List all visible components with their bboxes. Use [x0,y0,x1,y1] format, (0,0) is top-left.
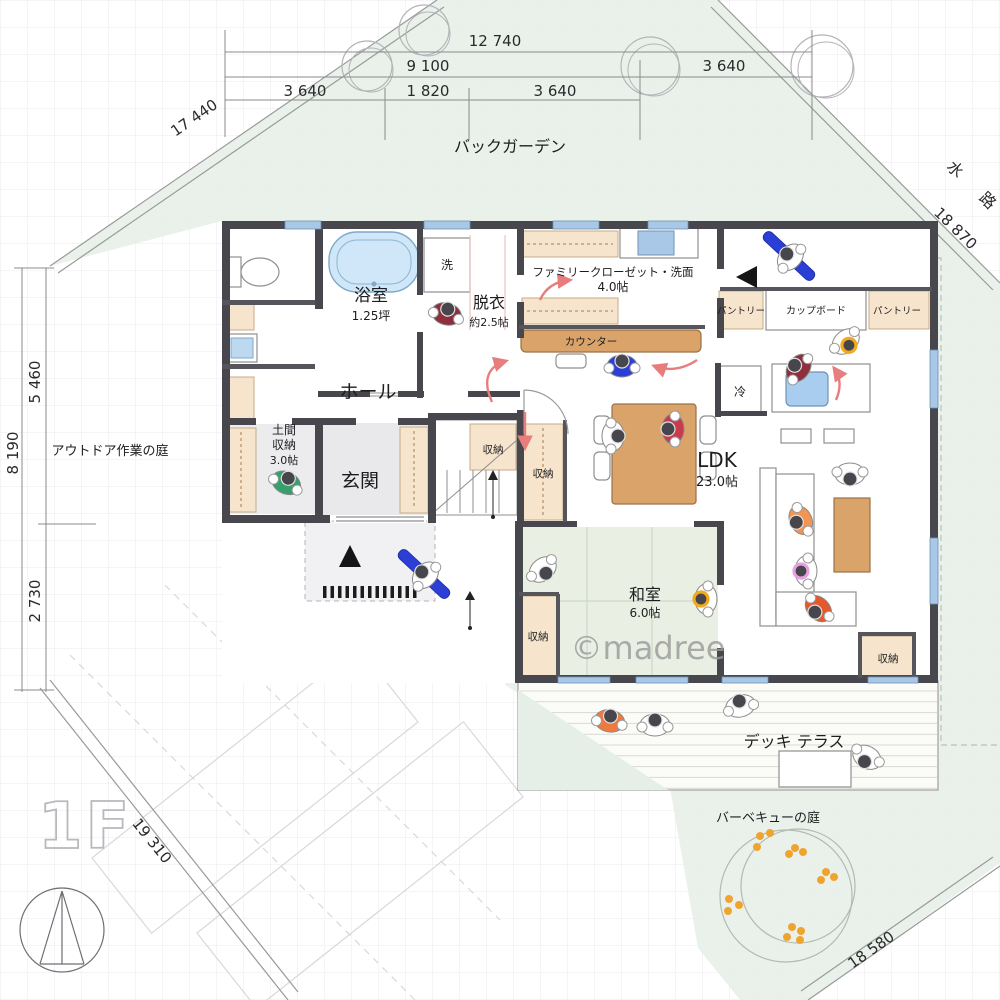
floor-label: 1F [38,790,132,864]
bbq-dot-icon [725,895,733,903]
bbq-dot-icon [756,832,764,840]
dim-left-upper: 5 460 [26,361,44,404]
back-garden-label: バックガーデン [454,137,566,156]
storage-stair2-label: 収納 [533,467,554,480]
bbq-dot-icon [735,901,743,909]
deck-label: デッキ テラス [744,732,845,751]
hall-label: ホール [339,381,396,403]
ldk-label: LDK [697,448,738,472]
washitsu-size: 6.0帖 [629,605,660,620]
bbq-dot-icon [822,868,830,876]
doma-size: 3.0帖 [270,454,299,467]
bbq-dot-icon [817,876,825,884]
window-icon [868,677,918,683]
pantry-right-label: パントリー [873,306,921,317]
storage-south-label: 収納 [878,652,899,665]
ldk-size: 23.0帖 [696,475,738,490]
bbq-dot-icon [753,843,761,851]
watermark: ©madree [571,629,726,667]
washitsu-label: 和室 [629,585,661,604]
toilet [227,257,279,287]
coffee-table [834,498,870,572]
family-closet-label: ファミリークローゼット・洗面 [533,265,694,279]
dim-left-lower: 2 730 [26,580,44,623]
dim-top-mid: 9 100 [407,57,450,75]
dining-table [612,404,696,504]
storage-stair-label: 収納 [483,443,504,456]
window-icon [285,221,321,229]
bathroom-label: 浴室 [354,286,388,306]
bbq-dot-icon [799,848,807,856]
doma-label-2: 収納 [272,438,296,452]
bbq-label: バーベキューの庭 [716,810,820,826]
bbq-dot-icon [766,829,774,837]
bbq-dot-icon [783,933,791,941]
vanity [620,228,698,258]
bbq-dot-icon [796,936,804,944]
fridge-label: 冷 [734,385,746,399]
counter-label: カウンター [565,336,618,348]
dim-top-right: 3 640 [703,57,746,75]
window-icon [648,221,688,229]
family-closet-size: 4.0帖 [597,279,628,294]
dim-top-b: 1 820 [407,82,450,100]
dim-top-c: 3 640 [534,82,577,100]
bbq-dot-icon [797,927,805,935]
bbq-dot-icon [830,873,838,881]
storage-washitsu-label: 収納 [528,630,549,643]
bbq-dot-icon [724,907,732,915]
window-icon [930,350,938,408]
window-icon [424,221,470,229]
bbq-dot-icon [791,844,799,852]
dressing-size: 約2.5帖 [469,315,509,329]
window-icon [722,677,768,683]
bbq-dot-icon [788,923,796,931]
window-icon [930,538,938,604]
window-icon [558,677,610,683]
deck-terrace [518,681,938,790]
dim-top-total: 12 740 [469,32,522,50]
bbq-dot-icon [785,850,793,858]
window-icon [636,677,688,683]
window-icon [553,221,599,229]
cupboard-label: カップボード [786,305,846,317]
pantry-left-label: パントリー [717,306,765,317]
laundry-label: 洗 [441,258,453,272]
entrance-label: 玄関 [341,470,379,492]
doma-label-1: 土間 [272,423,296,437]
dressing-label: 脱衣 [473,293,505,312]
bathroom-size: 1.25坪 [352,309,391,323]
floor-plan-page: 12 740 9 100 3 640 3 640 1 820 3 640 17 … [0,0,1000,1000]
dim-left-outer: 8 190 [4,432,22,475]
washbasin [227,334,257,362]
dim-top-a: 3 640 [284,82,327,100]
outdoor-garden-label: アウトドア作業の庭 [51,443,168,459]
floor-plan-canvas: 12 740 9 100 3 640 3 640 1 820 3 640 17 … [0,0,1000,1000]
